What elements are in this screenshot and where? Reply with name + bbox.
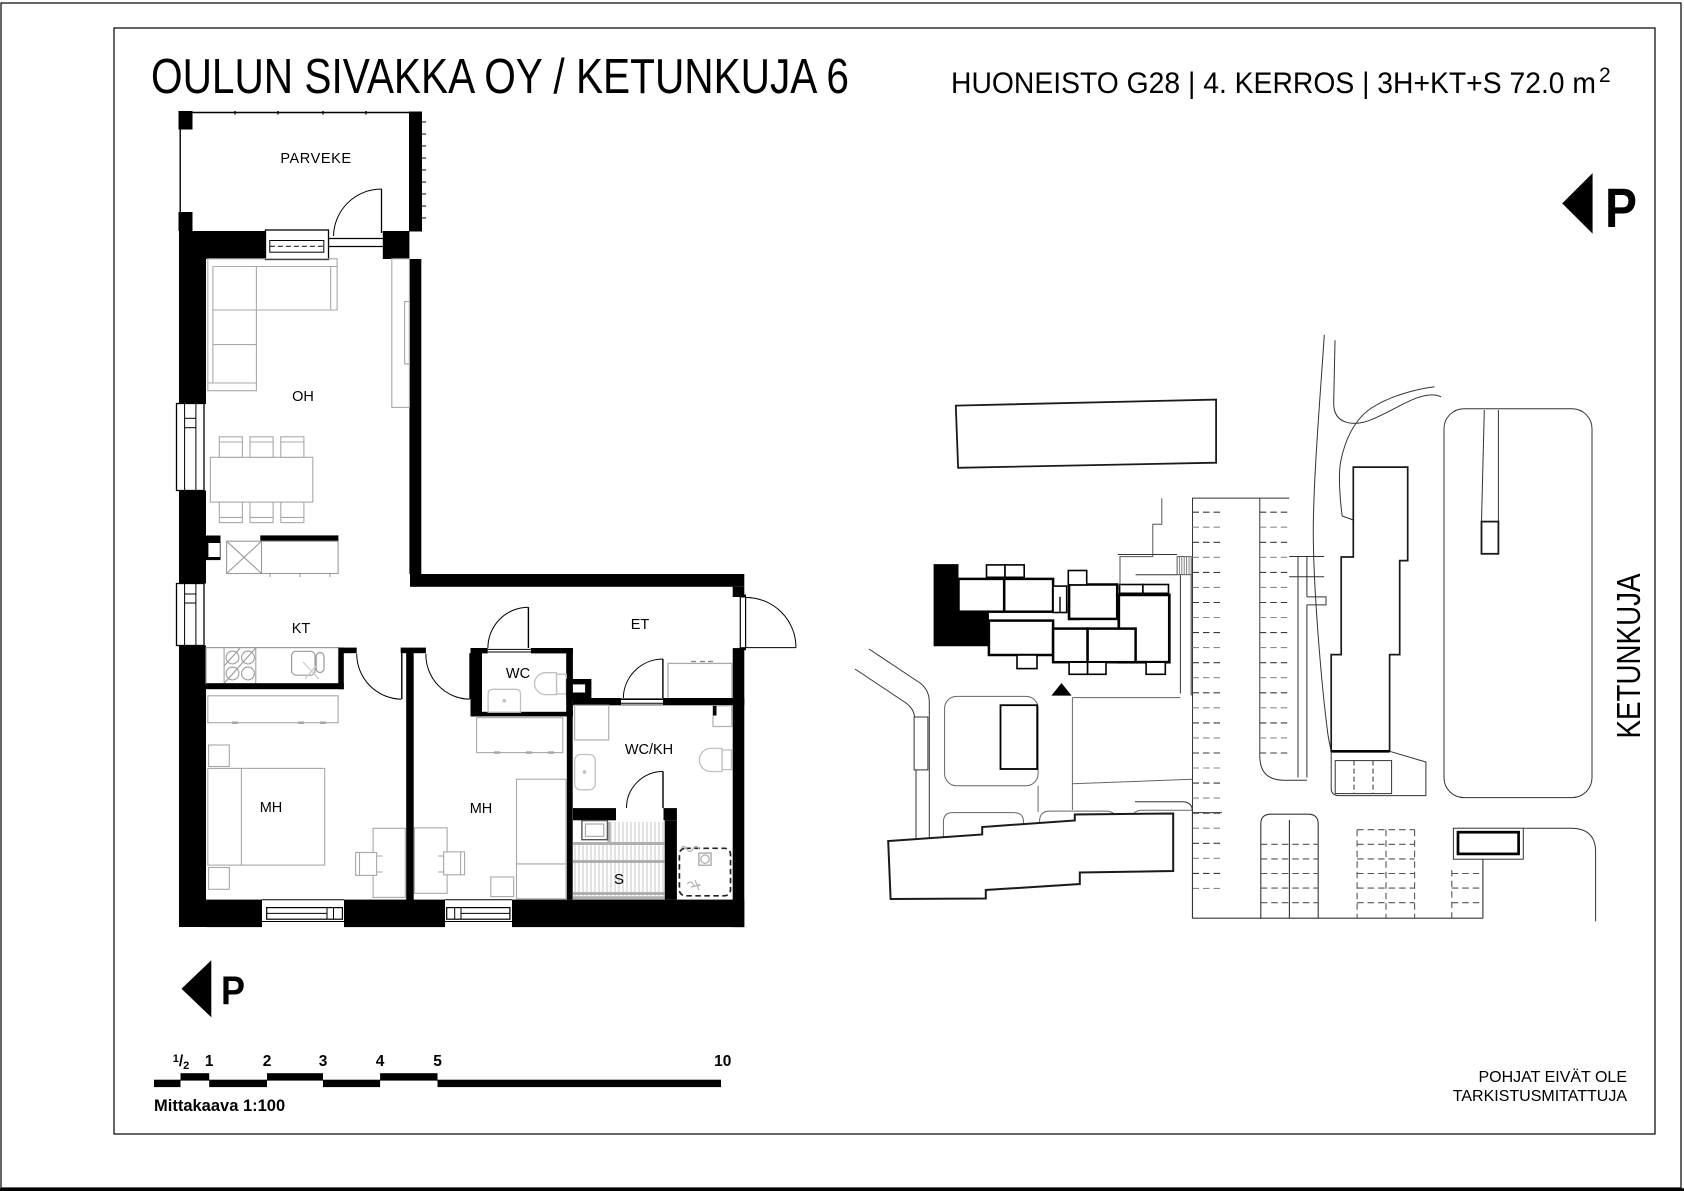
svg-text:PARVEKE: PARVEKE — [280, 151, 351, 167]
svg-text:2: 2 — [1599, 64, 1611, 87]
svg-text:10: 10 — [714, 1053, 731, 1070]
svg-text:WC: WC — [506, 666, 530, 682]
svg-text:S: S — [614, 871, 624, 888]
svg-text:TARKISTUSMITATTUJA: TARKISTUSMITATTUJA — [1453, 1088, 1628, 1105]
svg-text:2: 2 — [263, 1053, 272, 1070]
svg-text:KT: KT — [292, 621, 311, 637]
svg-text:5: 5 — [433, 1053, 442, 1070]
svg-text:Mittakaava 1:100: Mittakaava 1:100 — [154, 1097, 285, 1115]
svg-text:OULUN SIVAKKA OY / KETUNKUJA 6: OULUN SIVAKKA OY / KETUNKUJA 6 — [151, 49, 849, 104]
svg-text:ET: ET — [631, 617, 650, 633]
svg-text:4: 4 — [376, 1053, 385, 1070]
svg-text:POHJAT EIVÄT OLE: POHJAT EIVÄT OLE — [1479, 1068, 1628, 1086]
svg-text:MH: MH — [260, 800, 283, 816]
svg-text:OH: OH — [292, 389, 314, 405]
svg-text:3: 3 — [319, 1053, 328, 1070]
svg-text:P: P — [221, 969, 245, 1013]
svg-text:KETUNKUJA: KETUNKUJA — [1610, 574, 1647, 739]
svg-text:MH: MH — [470, 801, 493, 817]
svg-text:WC/KH: WC/KH — [625, 742, 673, 758]
svg-text:HUONEISTO G28 | 4. KERROS | 3H: HUONEISTO G28 | 4. KERROS | 3H+KT+S 72.0… — [951, 67, 1596, 100]
svg-text:1: 1 — [205, 1053, 214, 1070]
svg-text:P: P — [1605, 176, 1637, 239]
